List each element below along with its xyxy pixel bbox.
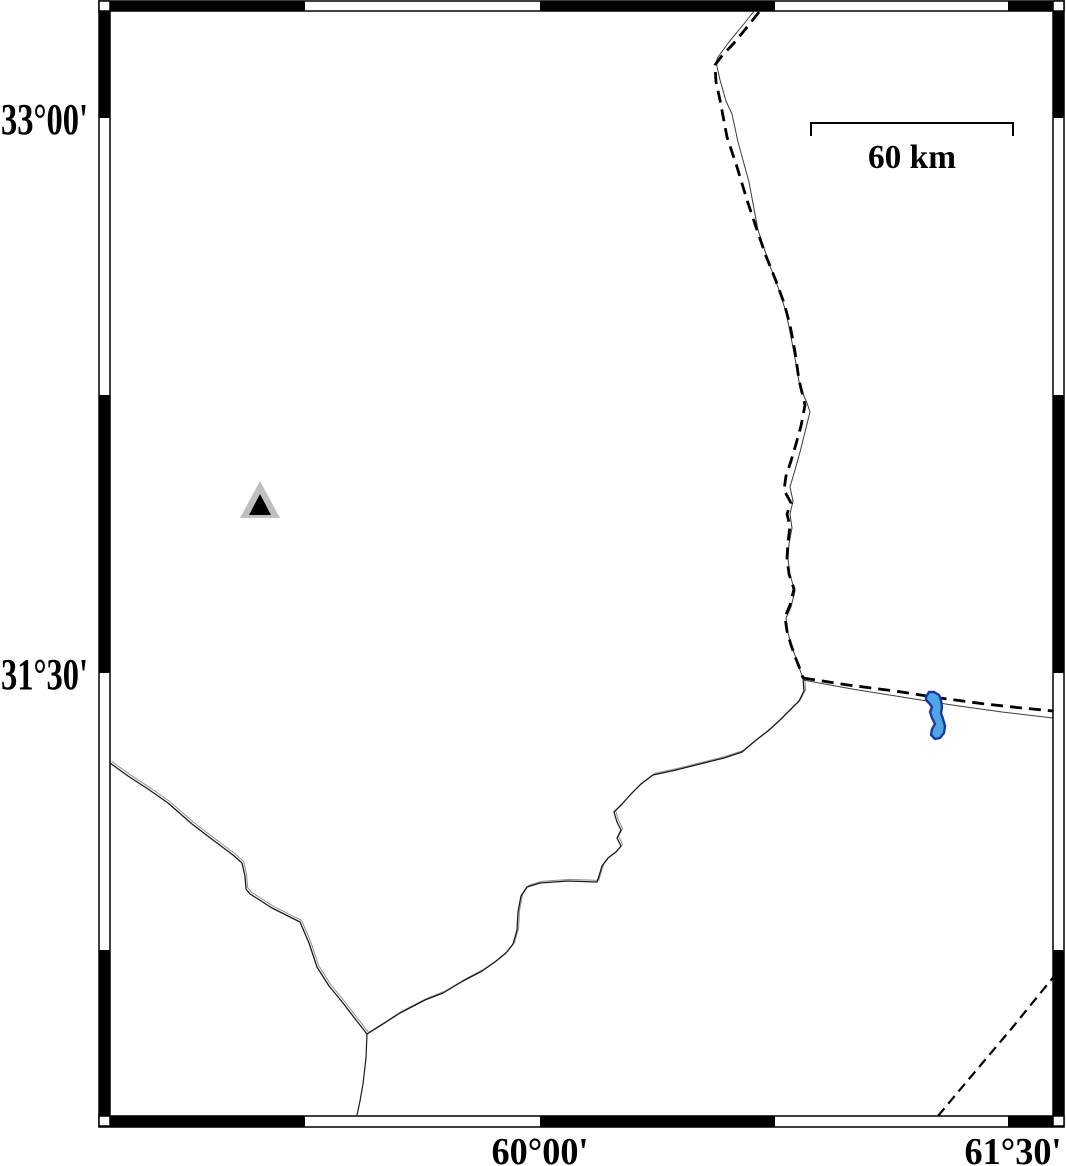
map-page: 60 km 33°00'31°30'60°00'61°30': [0, 0, 1066, 1166]
frame-left-black-1: [99, 395, 110, 673]
frame-corner-square-3: [1053, 1116, 1064, 1126]
scale-bar-label: 60 km: [868, 139, 956, 176]
frame-top-black-0: [110, 1, 305, 11]
frame-right-black-1: [1053, 395, 1064, 673]
frame-left-black-2: [99, 950, 110, 1116]
longitude-label-1: 61°30': [965, 1131, 1062, 1166]
map-canvas: 60 km 33°00'31°30'60°00'61°30': [0, 0, 1066, 1166]
latitude-label-1: 31°30': [1, 650, 88, 699]
frame-corner-square-1: [1053, 1, 1064, 11]
frame-top-black-1: [540, 1, 775, 11]
frame-corner-square-2: [99, 1116, 110, 1126]
latitude-label-0: 33°00': [1, 95, 88, 144]
frame-top-black-2: [1008, 1, 1053, 11]
frame-bottom-black-0: [110, 1116, 305, 1127]
frame-right-black-2: [1053, 950, 1064, 1116]
frame-bottom-black-1: [540, 1116, 775, 1127]
longitude-label-0: 60°00': [492, 1131, 589, 1166]
frame-corner-square-0: [99, 1, 110, 11]
frame-right-black-0: [1053, 11, 1064, 118]
frame-left-black-0: [99, 11, 110, 118]
frame-bottom-black-2: [1008, 1116, 1053, 1127]
